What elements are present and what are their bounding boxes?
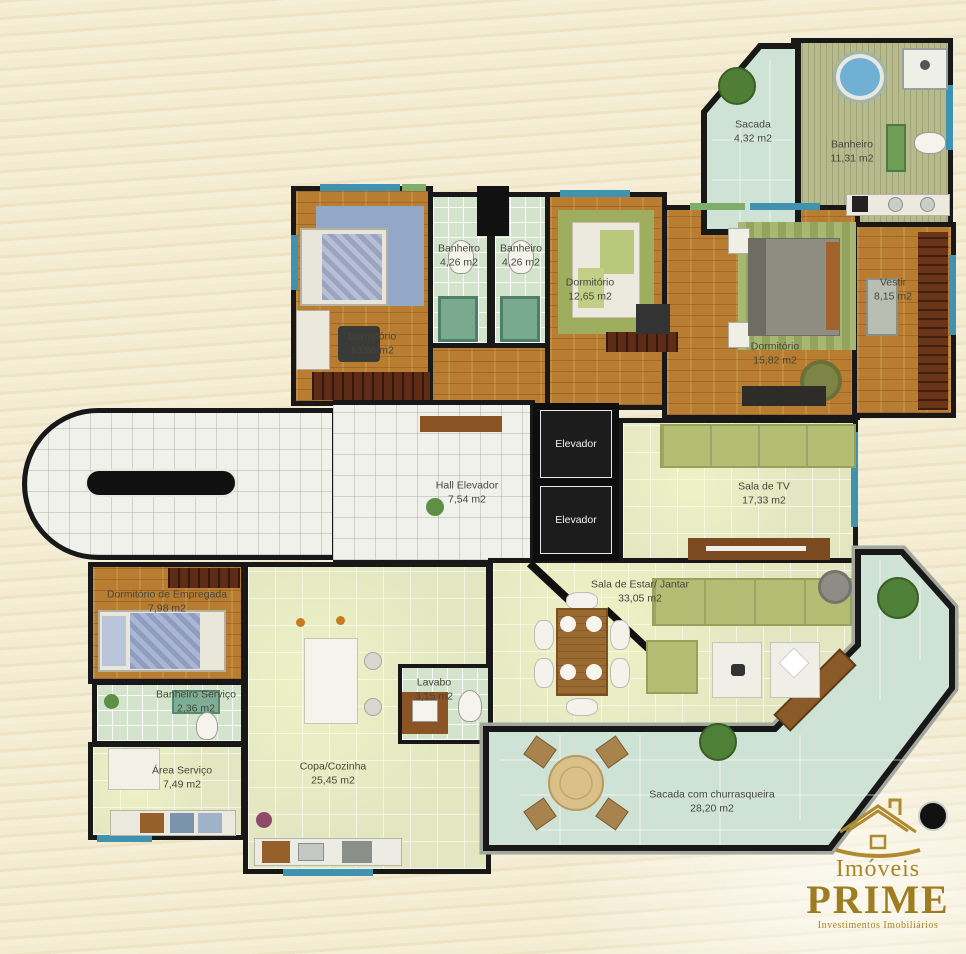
dining-chair — [566, 698, 598, 716]
plate — [560, 616, 576, 632]
label-dormitorio-empregada: Dormitório de Empregada7,98 m2 — [107, 588, 227, 615]
washer — [198, 813, 222, 833]
nightstand — [728, 322, 750, 348]
kitchen-item — [336, 616, 345, 625]
label-sala-estar-jantar: Sala de Estar/ Jantar33,05 m2 — [591, 578, 689, 605]
stove — [342, 841, 372, 863]
dining-chair — [534, 620, 554, 650]
plate — [586, 664, 602, 680]
toilet — [914, 132, 946, 154]
window — [283, 869, 373, 876]
bed-blanket — [322, 234, 382, 300]
label-dormitorio-1396: Dormitório13,96 m2 — [348, 330, 396, 357]
label-copa-cozinha: Copa/Cozinha25,45 m2 — [300, 760, 367, 787]
label-banheiro-servico: Banheiro Serviço2,36 m2 — [156, 688, 236, 715]
label-hall-elevador: Hall Elevador7,54 m2 — [436, 479, 498, 506]
plant-balcony-corner — [878, 578, 918, 618]
stool — [364, 652, 382, 670]
shaft — [477, 186, 509, 236]
shelf — [168, 568, 240, 588]
label-banheiro-master: Banheiro11,31 m2 — [831, 138, 874, 165]
label-dormitorio-1265: Dormitório12,65 m2 — [566, 276, 614, 303]
logo-house-icon — [818, 798, 938, 860]
bed-headboard — [748, 238, 766, 336]
bed-footboard — [826, 242, 840, 330]
window — [946, 85, 953, 150]
pouf — [818, 570, 852, 604]
bed-blanket — [600, 230, 634, 274]
toilet — [196, 712, 218, 740]
corridor-planter-pill — [86, 470, 236, 496]
logo-line-2: PRIME — [792, 883, 964, 917]
closet-shelving — [918, 232, 948, 410]
tv — [706, 546, 806, 551]
window — [690, 203, 745, 210]
label-area-servico: Área Serviço7,49 m2 — [152, 764, 212, 791]
label-banheiro-1: Banheiro4,26 m2 — [438, 242, 480, 269]
window — [291, 235, 298, 290]
label-elevador-2: Elevador — [555, 514, 596, 528]
counter-wood — [262, 841, 290, 863]
shower — [438, 296, 478, 342]
plant-flowers — [256, 812, 272, 828]
window — [402, 184, 426, 191]
nightstand — [728, 228, 750, 254]
bath-mat — [886, 124, 906, 172]
window — [560, 190, 630, 197]
plant-balcony — [700, 724, 736, 760]
table-decor — [731, 664, 745, 676]
window — [949, 255, 956, 335]
dining-chair — [610, 620, 630, 650]
window — [97, 835, 152, 842]
plate — [560, 664, 576, 680]
kitchen-island — [304, 638, 358, 724]
washer — [170, 813, 194, 833]
floor-plan: Sacada4,32 m2 Banheiro11,31 m2 Dormitóri… — [0, 0, 966, 954]
plant — [104, 694, 119, 709]
armchair — [646, 640, 698, 694]
window — [750, 203, 820, 210]
plate — [586, 616, 602, 632]
label-dormitorio-1582: Dormitório15,82 m2 — [751, 340, 799, 367]
shower — [500, 296, 540, 342]
toilet — [458, 690, 482, 722]
window — [320, 184, 400, 191]
label-sacada-churrasqueira: Sacada com churrasqueira28,20 m2 — [649, 788, 774, 815]
bed-pillow — [102, 616, 126, 666]
sink — [298, 843, 324, 861]
sideboard — [420, 416, 502, 432]
label-sacada: Sacada4,32 m2 — [734, 118, 772, 145]
wardrobe — [312, 372, 430, 400]
hot-tub — [836, 54, 884, 100]
kitchen-item — [296, 618, 305, 627]
dining-chair — [610, 658, 630, 688]
logo-line-3: Investimentos Imobiliários — [792, 920, 964, 931]
sink — [920, 197, 935, 212]
counter-item — [852, 196, 868, 212]
brand-logo: Imóveis PRIME Investimentos Imobiliários — [792, 798, 964, 950]
shower-head — [920, 60, 930, 70]
dining-chair — [534, 658, 554, 688]
desk — [296, 310, 330, 370]
sink — [888, 197, 903, 212]
label-lavabo: Lavabo3,15 m2 — [415, 676, 453, 703]
counter-wood — [140, 813, 164, 833]
bed-blanket — [130, 613, 200, 669]
dresser-dark — [742, 386, 826, 406]
label-banheiro-2: Banheiro4,26 m2 — [500, 242, 542, 269]
armchair-dark — [636, 304, 670, 334]
label-sala-tv: Sala de TV17,33 m2 — [738, 480, 790, 507]
label-vestir: Vestir8,15 m2 — [874, 276, 912, 303]
stool — [364, 698, 382, 716]
sofa — [660, 424, 856, 468]
dresser — [606, 332, 678, 352]
plant-sacada — [719, 68, 755, 104]
label-elevador-1: Elevador — [555, 438, 596, 452]
